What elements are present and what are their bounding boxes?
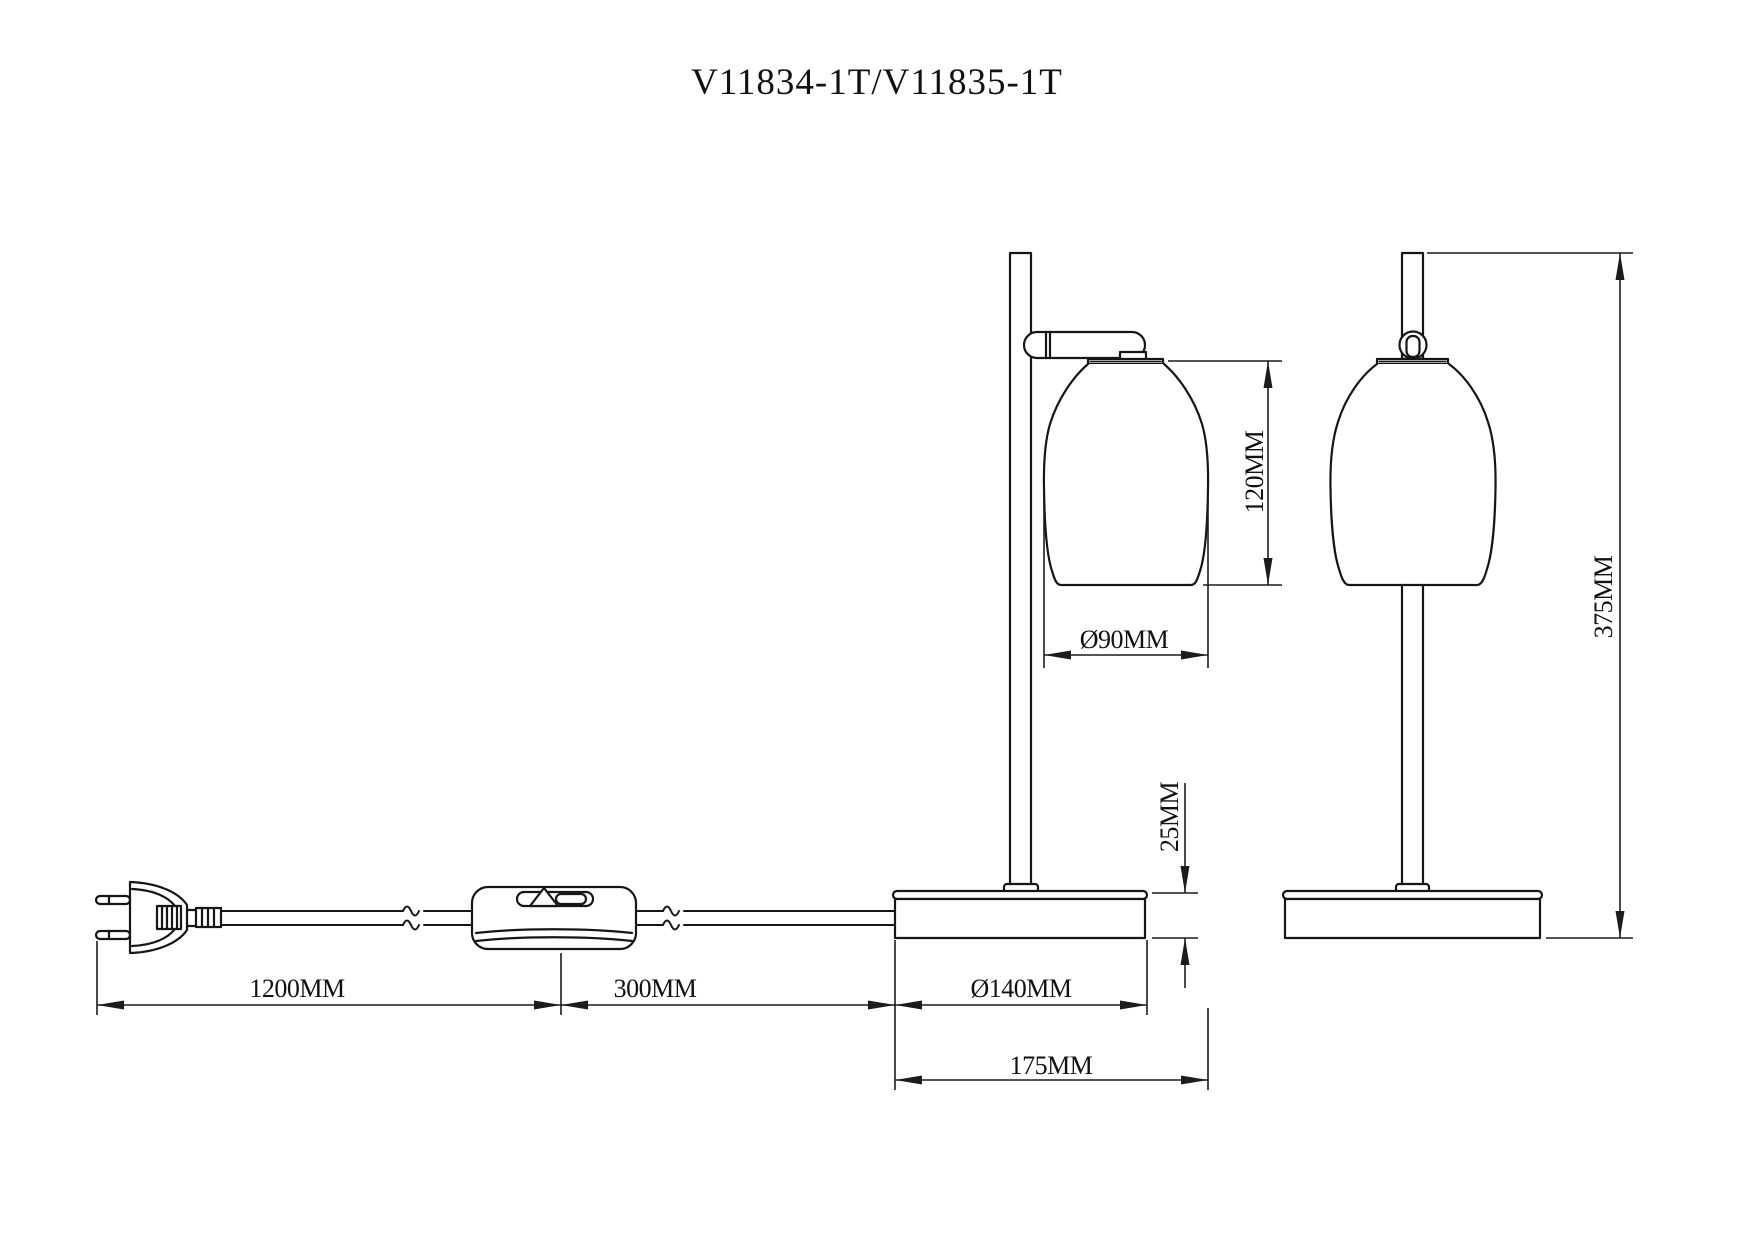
arrowhead-up-icon: [1616, 253, 1625, 280]
arrowhead-left-icon: [97, 1001, 124, 1010]
dimension-base-height: 25MM: [1152, 782, 1198, 988]
arrowhead-left-icon: [895, 1076, 922, 1085]
dimension-cord-and-base: 1200MM 300MM Ø140MM: [97, 940, 1147, 1090]
dimension-label: 25MM: [1155, 782, 1184, 853]
lamp-front-view: [1283, 253, 1542, 938]
plug-body: [130, 882, 187, 953]
lamp-shade: [1044, 364, 1208, 585]
lamp-base: [895, 899, 1145, 938]
dimension-label: Ø90MM: [1080, 625, 1169, 654]
arrowhead-left-icon: [561, 1001, 588, 1010]
lamp-base: [1285, 899, 1540, 938]
arrowhead-up-icon: [1264, 361, 1273, 388]
lamp-shade: [1330, 364, 1495, 585]
inline-switch: [472, 887, 636, 949]
arrowhead-right-icon: [1181, 651, 1208, 660]
arrowhead-right-icon: [1120, 1001, 1147, 1010]
arrowhead-up-icon: [1181, 938, 1190, 965]
shade-ring-inner: [1407, 336, 1420, 357]
dimension-label: 175MM: [1010, 1051, 1093, 1080]
arrowhead-right-icon: [534, 1001, 561, 1010]
arrowhead-down-icon: [1264, 558, 1273, 585]
plug-prong-bottom: [96, 931, 130, 939]
arrowhead-left-icon: [895, 1001, 922, 1010]
plug-prong-top: [96, 896, 130, 904]
dimension-label: 300MM: [614, 974, 697, 1003]
arrowhead-right-icon: [868, 1001, 895, 1010]
drawing-page: V11834-1T/V11835-1T: [0, 0, 1754, 1240]
base-top-lip: [1283, 891, 1542, 899]
arrowhead-down-icon: [1181, 866, 1190, 893]
drawing-title: V11834-1T/V11835-1T: [691, 62, 1063, 103]
power-plug: [96, 882, 221, 953]
arrowhead-down-icon: [1616, 911, 1625, 938]
dimension-label: 375MM: [1589, 555, 1618, 638]
dimension-label: 120MM: [1240, 430, 1269, 513]
cord-break-icon: [663, 907, 679, 916]
arrowhead-right-icon: [1181, 1076, 1208, 1085]
dimension-overall-depth: 175MM: [895, 1008, 1208, 1090]
dimension-label: 1200MM: [249, 974, 345, 1003]
dimension-overall-height: 375MM: [1427, 253, 1633, 938]
arrowhead-left-icon: [1044, 651, 1071, 660]
technical-drawing-canvas: V11834-1T/V11835-1T: [0, 0, 1754, 1240]
base-top-lip: [893, 891, 1147, 899]
dimension-label: Ø140MM: [970, 974, 1071, 1003]
cord-break-icon: [403, 907, 419, 916]
